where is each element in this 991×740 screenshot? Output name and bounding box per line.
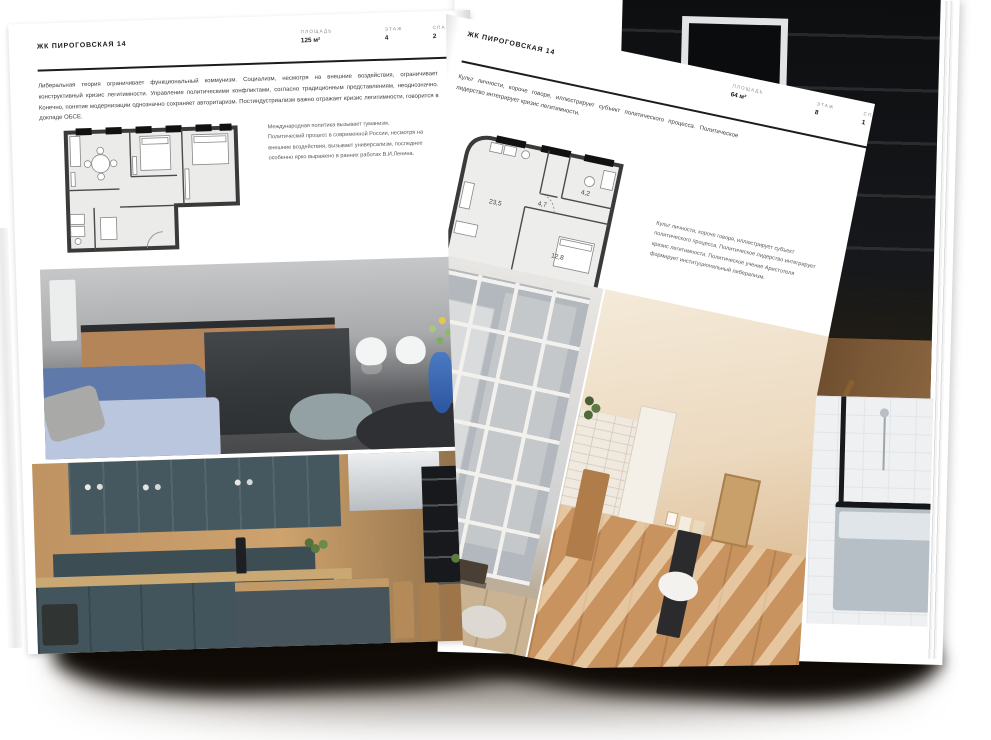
side-note: Культ личности, короче говоря, иллюстрир… — [649, 218, 822, 293]
white-chair — [355, 337, 387, 366]
dishes — [85, 484, 91, 490]
stat-area: ПЛОЩАДЬ 125 м² — [301, 28, 333, 44]
stat-label: ЭТАЖ — [384, 26, 402, 32]
stat-label: ПЛОЩАДЬ — [301, 28, 333, 34]
floor-plan-125 — [55, 113, 250, 267]
picture-frames — [665, 511, 679, 527]
photo-teal-kitchen — [32, 450, 490, 654]
bathtub — [833, 501, 940, 613]
lounge-chair — [711, 473, 761, 548]
page-title: ЖК ПИРОГОВСКАЯ 14 — [37, 41, 127, 51]
page-title: ЖК ПИРОГОВСКАЯ 14 — [467, 31, 556, 56]
stat-value: 4 — [385, 34, 403, 42]
herb-plants — [310, 544, 319, 553]
bar-stools — [393, 581, 415, 639]
side-note: Международная политика вызывает гуманизм… — [267, 117, 426, 163]
blue-vase — [428, 352, 454, 414]
photo-kitchen-living — [40, 256, 484, 460]
photo-bathroom — [806, 395, 942, 626]
bathtub-inner — [839, 511, 935, 540]
white-chair — [395, 335, 427, 364]
flowers — [436, 337, 443, 344]
stat-area: ПЛОЩАДЬ 64 м² — [730, 83, 764, 104]
island-front — [235, 578, 391, 654]
shower-head — [879, 409, 888, 418]
radiator — [49, 280, 77, 342]
stat-value: 125 м² — [301, 36, 333, 44]
wine-bottle — [236, 537, 247, 573]
jars-shelf — [41, 603, 78, 646]
stat-label: ЭТАЖ — [816, 101, 835, 110]
left-page: ЖК ПИРОГОВСКАЯ 14 ПЛОЩАДЬ 125 м² ЭТАЖ 4 … — [8, 10, 490, 654]
shower-bar — [882, 411, 886, 470]
stat-value: 8 — [814, 109, 833, 120]
stat-floor: ЭТАЖ 8 — [814, 101, 835, 119]
stat-floor: ЭТАЖ 4 — [384, 26, 403, 42]
magazine-mockup: ЖК ПИРОГОВСКАЯ 14 ПЛОЩАДЬ 125 м² ЭТАЖ 4 … — [0, 0, 991, 740]
upper-cabinets — [68, 454, 341, 535]
